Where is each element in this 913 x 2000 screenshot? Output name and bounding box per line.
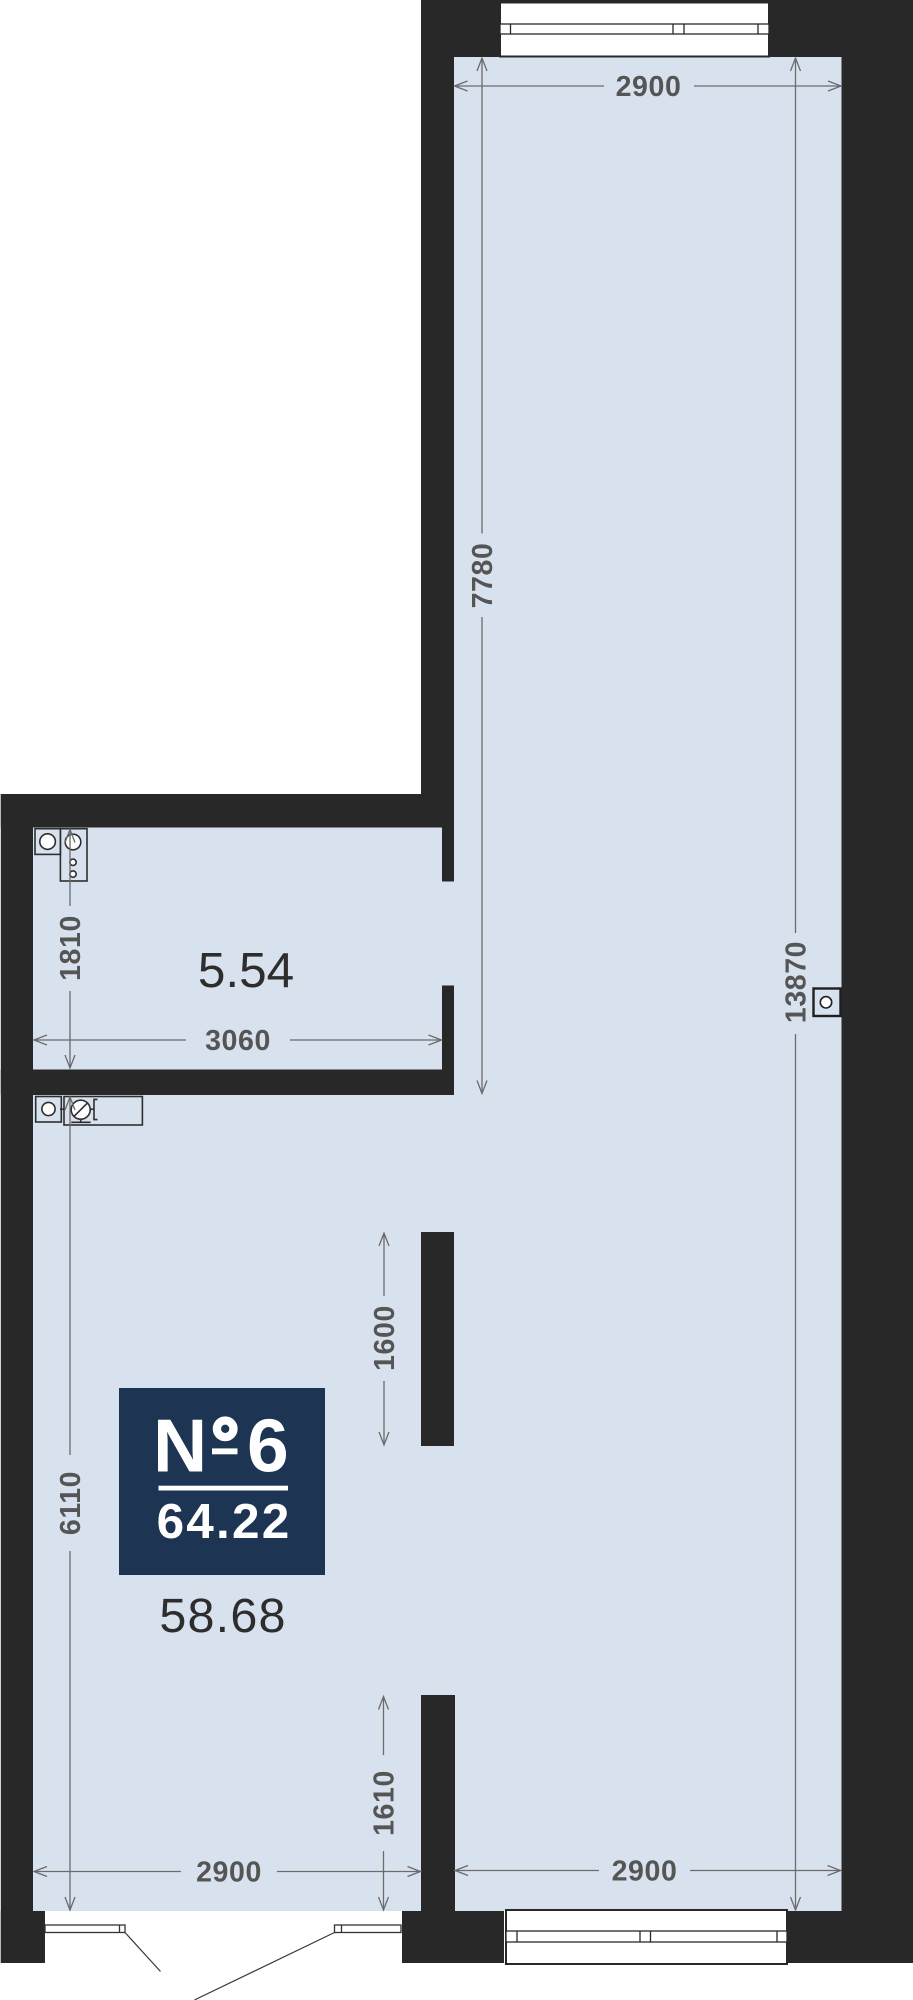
svg-text:7780: 7780 xyxy=(467,543,499,609)
svg-text:1810: 1810 xyxy=(55,915,87,981)
svg-text:13870: 13870 xyxy=(781,941,813,1023)
svg-text:6110: 6110 xyxy=(55,1471,87,1535)
svg-text:2900: 2900 xyxy=(612,1856,678,1888)
svg-text:58.68: 58.68 xyxy=(159,1589,286,1643)
svg-text:2900: 2900 xyxy=(196,1857,262,1889)
svg-text:1610: 1610 xyxy=(369,1770,401,1836)
svg-text:2900: 2900 xyxy=(616,71,682,103)
svg-text:5.54: 5.54 xyxy=(198,943,294,998)
svg-text:3060: 3060 xyxy=(205,1025,271,1057)
svg-text:N: N xyxy=(153,1404,207,1488)
svg-text:64.22: 64.22 xyxy=(157,1494,292,1549)
svg-text:1600: 1600 xyxy=(369,1305,401,1371)
svg-text:6: 6 xyxy=(247,1404,289,1488)
